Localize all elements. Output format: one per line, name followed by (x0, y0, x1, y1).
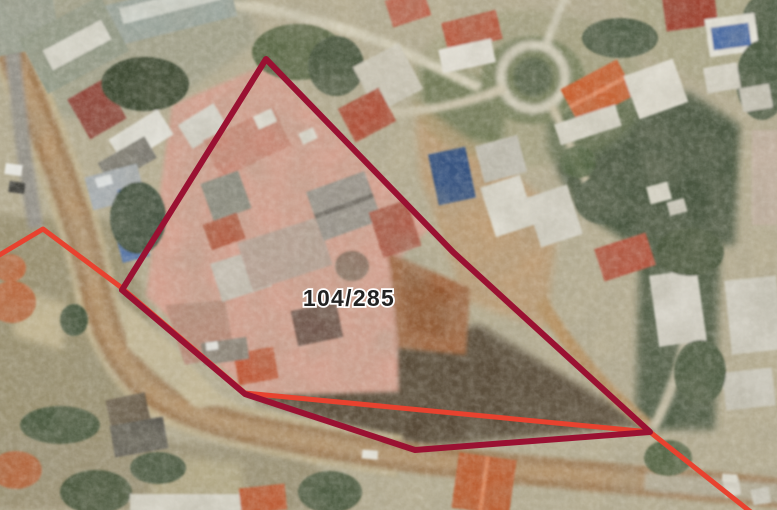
svg-text:104/285: 104/285 (303, 285, 395, 311)
